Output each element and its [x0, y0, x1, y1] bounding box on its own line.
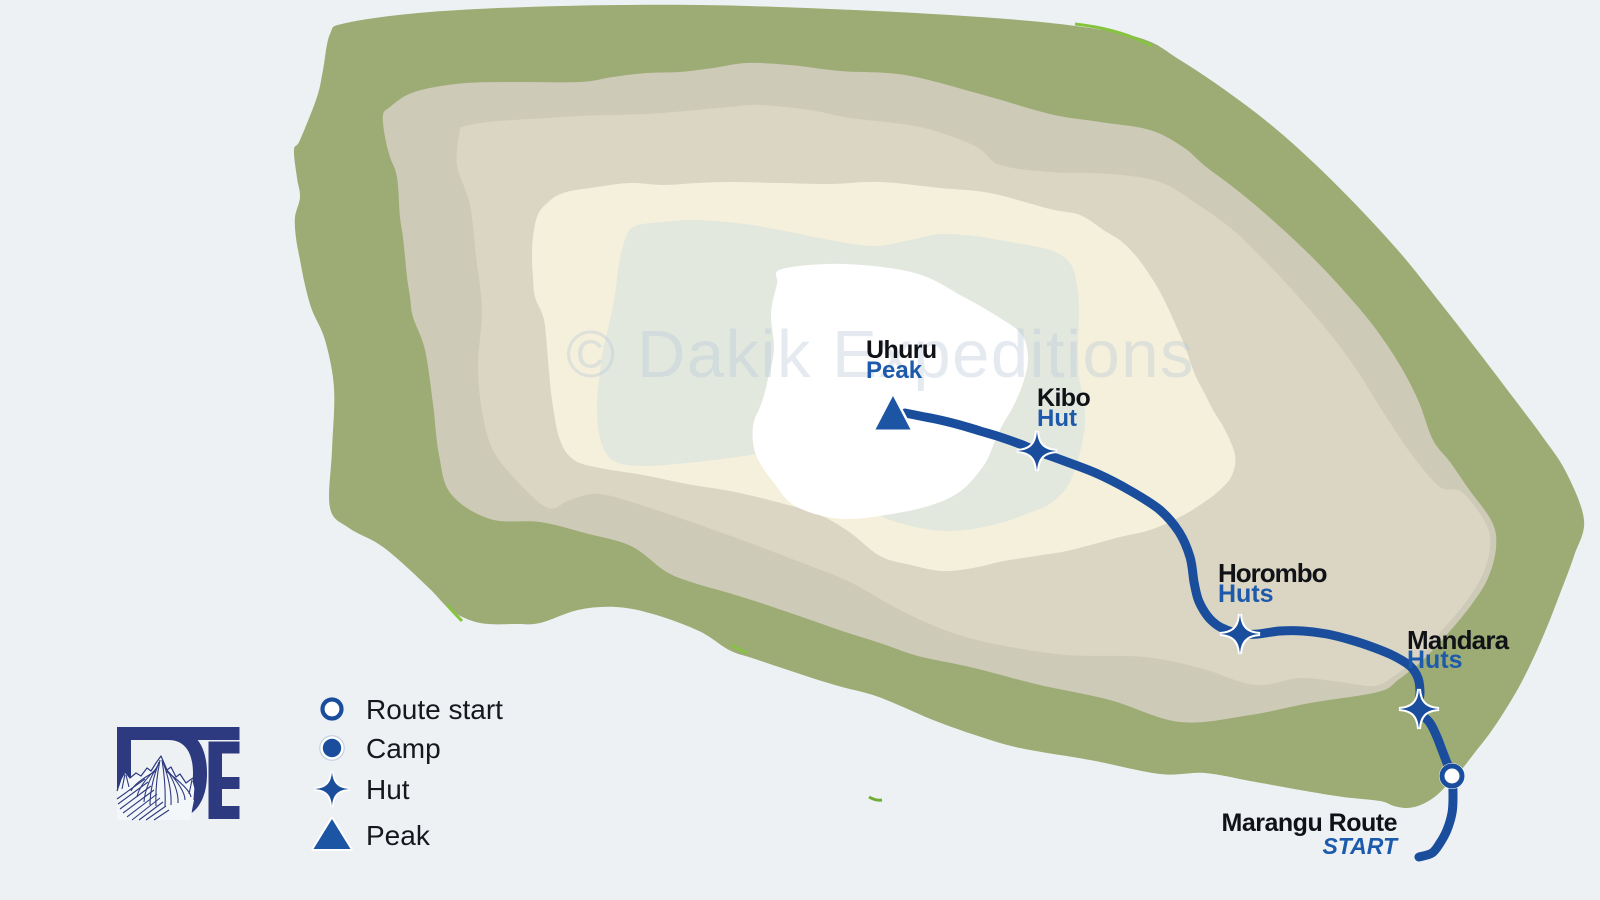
svg-text:Huts: Huts: [1407, 646, 1463, 674]
svg-text:START: START: [1322, 833, 1398, 859]
svg-text:Hut: Hut: [1037, 405, 1077, 432]
svg-text:Hut: Hut: [366, 774, 410, 805]
svg-text:Peak: Peak: [866, 357, 923, 384]
svg-text:Huts: Huts: [1218, 580, 1274, 608]
svg-text:Camp: Camp: [366, 733, 441, 764]
svg-text:Route start: Route start: [366, 694, 503, 725]
svg-text:Peak: Peak: [366, 820, 431, 851]
